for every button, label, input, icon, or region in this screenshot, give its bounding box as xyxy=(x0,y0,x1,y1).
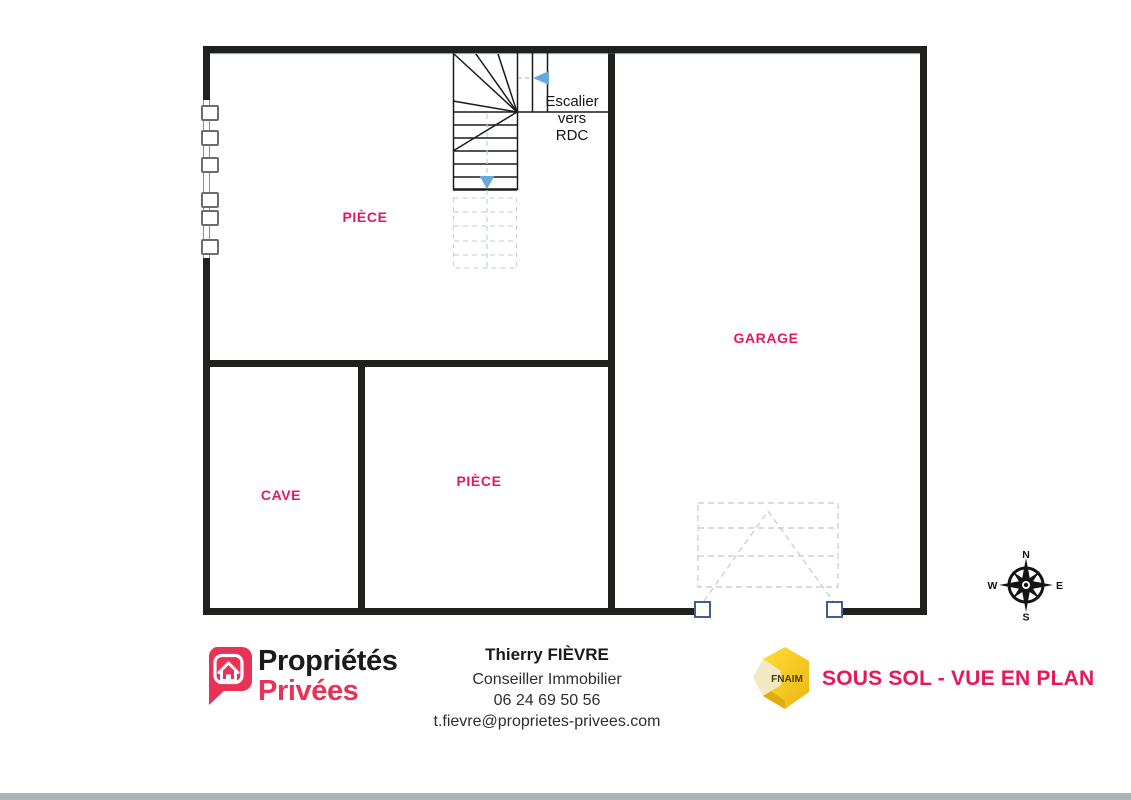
stair-arrow-down-icon xyxy=(480,176,495,189)
agent-email: t.fievre@proprietes-privees.com xyxy=(416,711,678,732)
room-label-garage: GARAGE xyxy=(733,330,798,346)
room-label-piece-bottom: PIÈCE xyxy=(456,473,501,489)
stair-annotation-line: vers xyxy=(539,110,605,127)
fnaim-label: FNAIM xyxy=(771,674,803,685)
compass-south-label: S xyxy=(1022,612,1029,624)
ghost-stairs xyxy=(454,198,517,268)
stair-annotation-line: Escalier xyxy=(539,93,605,110)
fnaim-logo: FNAIM xyxy=(751,646,815,712)
stair-arrow-left-icon xyxy=(533,71,549,85)
brand-logo-icon xyxy=(205,647,257,707)
compass-west-label: W xyxy=(988,580,998,592)
garage-door-post xyxy=(695,602,710,617)
agent-title: Conseiller Immobilier xyxy=(416,669,678,690)
compass-icon: N E S W xyxy=(988,549,1063,624)
garage-door-icon xyxy=(698,503,838,601)
stair-annotation-line: RDC xyxy=(539,127,605,144)
plan-title: SOUS SOL - VUE EN PLAN xyxy=(822,667,1102,691)
agent-phone: 06 24 69 50 56 xyxy=(416,690,678,711)
stair-annotation: Escalier vers RDC xyxy=(539,93,605,144)
agent-contact-block: Thierry FIÈVRE Conseiller Immobilier 06 … xyxy=(416,645,678,732)
floor-plan-page: N E S W PIÈCE GARAGE CAVE PIÈCE Escalier… xyxy=(0,0,1131,800)
brand-name-line2: Privées xyxy=(258,676,358,706)
compass-east-label: E xyxy=(1056,580,1063,592)
brand-name-line1: Propriétés xyxy=(258,646,397,676)
agent-name: Thierry FIÈVRE xyxy=(416,645,678,665)
scan-edge-strip xyxy=(0,793,1131,800)
room-label-cave: CAVE xyxy=(261,487,301,503)
room-label-piece-top: PIÈCE xyxy=(342,209,387,225)
compass-north-label: N xyxy=(1022,549,1030,561)
garage-door-post xyxy=(827,602,842,617)
